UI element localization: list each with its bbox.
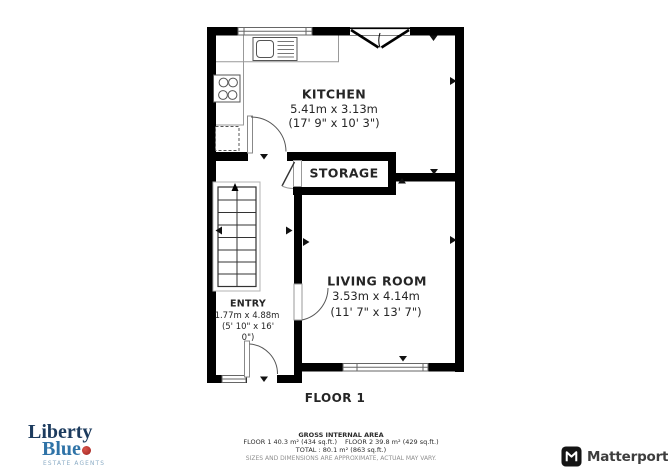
appliance-dashed-icon: [216, 127, 240, 151]
kitchen-dims-m: 5.41m x 3.13m: [290, 102, 378, 116]
matterport-m-icon: [561, 446, 582, 467]
area-summary: GROSS INTERNAL AREA FLOOR 1 40.3 m² (434…: [243, 432, 438, 463]
french-door-icon: [350, 28, 410, 48]
total-area: TOTAL : 80.1 m² (863 sq.ft.): [243, 447, 438, 454]
wall-storage-bottom: [293, 187, 396, 195]
storage-door-icon: [282, 161, 302, 189]
floor-plan-page: KITCHEN 5.41m x 3.13m (17' 9" x 10' 3") …: [0, 0, 668, 472]
matterport-logo: Matterport: [561, 446, 668, 467]
entry-dims-ft-1: (5' 10" x 16': [222, 322, 274, 332]
liberty-logo-tagline: ESTATE AGENTS: [43, 461, 148, 467]
living-room-dims-ft: (11' 7" x 13' 7"): [330, 305, 421, 319]
matterport-wordmark: Matterport: [587, 449, 668, 465]
living-door-icon: [294, 284, 328, 320]
stairs-icon: [213, 182, 260, 291]
living-window-icon: [343, 364, 428, 372]
entry-label: ENTRY: [230, 299, 266, 310]
ladybird-dot-icon: [82, 446, 91, 455]
living-room-label: LIVING ROOM: [327, 274, 427, 289]
kitchen-window-icon: [238, 28, 312, 36]
liberty-logo-line2: Blue: [42, 441, 81, 458]
wall-right: [455, 27, 464, 372]
entry-dims-m: 1.77m x 4.88m: [215, 311, 280, 321]
storage-label: STORAGE: [309, 166, 378, 181]
floor-label: FLOOR 1: [305, 391, 365, 405]
sink-icon: [253, 38, 297, 61]
living-room-dims-m: 3.53m x 4.14m: [332, 289, 420, 303]
entry-dims-ft-2: 0"): [242, 333, 255, 343]
kitchen-dims-ft: (17' 9" x 10' 3"): [288, 116, 379, 130]
liberty-blue-logo: Liberty Blue ESTATE AGENTS: [28, 423, 148, 467]
kitchen-label: KITCHEN: [302, 87, 366, 102]
wall-kitchen-living: [396, 173, 455, 182]
hob-icon: [214, 75, 241, 102]
disclaimer-text: SIZES AND DIMENSIONS ARE APPROXIMATE, AC…: [243, 455, 438, 462]
entry-window-icon: [222, 376, 246, 383]
